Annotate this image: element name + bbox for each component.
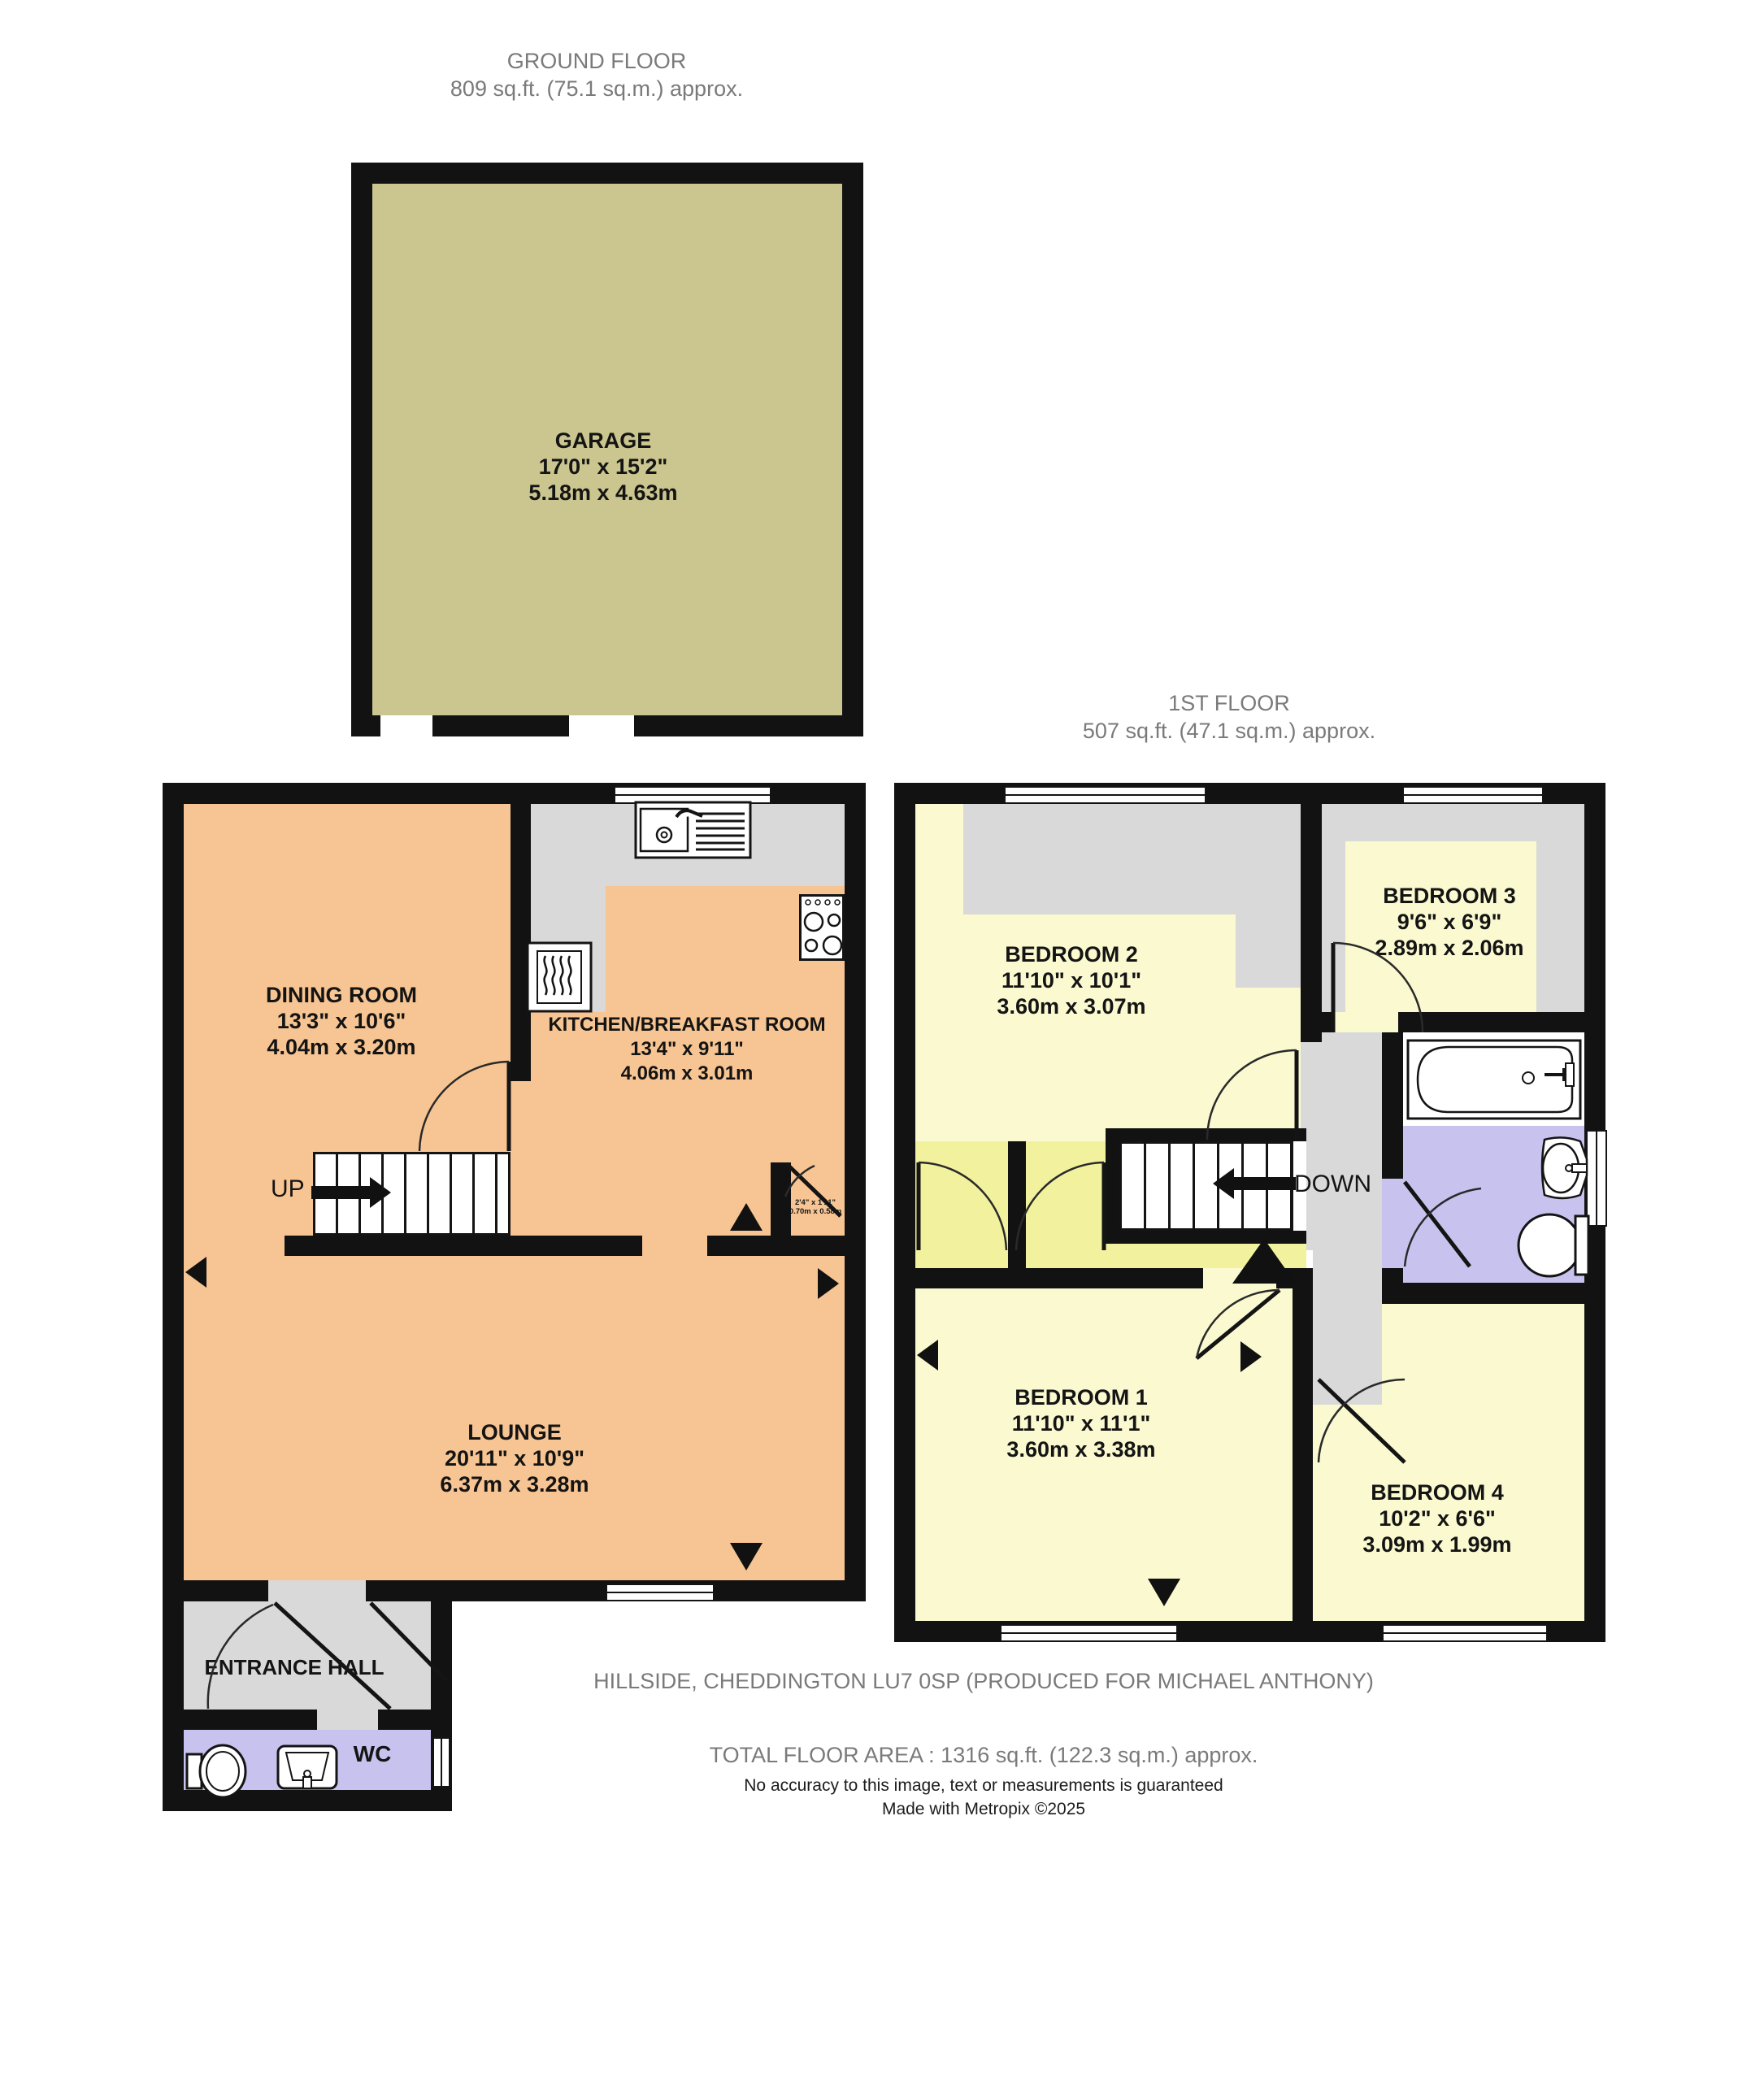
direction-arrow-up	[730, 1203, 763, 1231]
dining-imperial: 13'3" x 10'6"	[266, 1008, 417, 1034]
wall-segment	[1382, 1032, 1403, 1179]
window	[432, 1737, 450, 1788]
direction-arrow-left	[185, 1257, 206, 1288]
garage-door-gap	[569, 715, 634, 736]
wc-basin-icon	[275, 1744, 340, 1792]
bathtub-icon	[1406, 1039, 1582, 1120]
garage-label: GARAGE 17'0" x 15'2" 5.18m x 4.63m	[528, 428, 677, 506]
direction-arrow-down	[730, 1543, 763, 1571]
door-arc	[1317, 1378, 1408, 1466]
direction-arrow-right	[818, 1268, 839, 1299]
wall-segment	[163, 783, 184, 1601]
bedroom2-wardrobe	[963, 804, 1301, 915]
door-arc	[1401, 1177, 1486, 1271]
disclaimer-text: No accuracy to this image, text or measu…	[496, 1776, 1471, 1796]
total-floor-area: TOTAL FLOOR AREA : 1316 sq.ft. (122.3 sq…	[496, 1743, 1471, 1768]
stairs-up-label: UP	[271, 1175, 305, 1203]
wall-segment	[1382, 1283, 1605, 1304]
direction-arrow-down	[1148, 1579, 1180, 1606]
door-opening	[268, 1580, 366, 1601]
kitchen-imperial: 13'4" x 9'11"	[548, 1037, 825, 1062]
bedroom1-name: BEDROOM 1	[1006, 1384, 1155, 1410]
wall-segment	[285, 1236, 642, 1256]
door-opening	[642, 1236, 707, 1256]
lounge-name: LOUNGE	[440, 1419, 589, 1445]
bedroom2-imperial: 11'10" x 10'1"	[997, 967, 1145, 993]
first-floor-area: 507 sq.ft. (47.1 sq.m.) approx.	[985, 717, 1473, 745]
bedroom2-wardrobe	[1236, 915, 1301, 988]
window	[1402, 786, 1544, 804]
garage-imperial: 17'0" x 15'2"	[528, 454, 677, 480]
bedroom4-label: BEDROOM 4 10'2" x 6'6" 3.09m x 1.99m	[1362, 1479, 1511, 1557]
garage-door-gap	[380, 715, 432, 736]
garage-name: GARAGE	[528, 428, 677, 454]
wc-label: WC	[354, 1741, 392, 1767]
property-address: HILLSIDE, CHEDDINGTON LU7 0SP (PRODUCED …	[496, 1669, 1471, 1694]
bedroom4-metric: 3.09m x 1.99m	[1362, 1531, 1511, 1557]
ground-floor-title: GROUND FLOOR	[353, 47, 841, 75]
stairs-down-arrow	[1232, 1177, 1296, 1190]
wall-segment	[845, 783, 866, 1601]
room-lounge	[184, 1256, 845, 1580]
window	[1382, 1624, 1548, 1642]
lounge-metric: 6.37m x 3.28m	[440, 1471, 589, 1497]
first-floor-title: 1ST FLOOR	[985, 689, 1473, 717]
bedroom1-label: BEDROOM 1 11'10" x 11'1" 3.60m x 3.38m	[1006, 1384, 1155, 1462]
door-opening	[1382, 1179, 1403, 1268]
ground-floor-header: GROUND FLOOR 809 sq.ft. (75.1 sq.m.) app…	[353, 47, 841, 102]
bedroom4-name: BEDROOM 4	[1362, 1479, 1511, 1505]
stairs-down-arrow-head	[1213, 1168, 1234, 1199]
wall-segment	[1301, 804, 1322, 1042]
window	[606, 1584, 715, 1601]
window	[1004, 786, 1206, 804]
kitchen-label: KITCHEN/BREAKFAST ROOM 13'4" x 9'11" 4.0…	[548, 1013, 825, 1086]
boiler-icon	[526, 941, 593, 1013]
wall-segment	[163, 1601, 184, 1811]
door-arc	[915, 1159, 1008, 1253]
door-arc	[203, 1600, 457, 1715]
bedroom3-imperial: 9'6" x 6'9"	[1375, 909, 1523, 935]
lounge-label: LOUNGE 20'11" x 10'9" 6.37m x 3.28m	[440, 1419, 589, 1497]
bedroom2-label: BEDROOM 2 11'10" x 10'1" 3.60m x 3.07m	[997, 941, 1145, 1019]
ground-floor-area: 809 sq.ft. (75.1 sq.m.) approx.	[353, 75, 841, 102]
lounge-imperial: 20'11" x 10'9"	[440, 1445, 589, 1471]
credit-text: Made with Metropix ©2025	[496, 1800, 1471, 1819]
wc-toilet-icon	[185, 1741, 249, 1801]
floorplan-page: { "headers": { "ground_floor": {"title":…	[0, 0, 1764, 2081]
bedroom2-name: BEDROOM 2	[997, 941, 1145, 967]
stove-icon	[799, 894, 845, 961]
wall-segment	[894, 783, 915, 1642]
first-floor-header: 1ST FLOOR 507 sq.ft. (47.1 sq.m.) approx…	[985, 689, 1473, 745]
door-opening	[184, 1236, 285, 1256]
bedroom2-metric: 3.60m x 3.07m	[997, 993, 1145, 1019]
kitchen-name: KITCHEN/BREAKFAST ROOM	[548, 1013, 825, 1037]
room-bedroom4	[1382, 1304, 1584, 1405]
door-opening	[1301, 1042, 1322, 1128]
direction-arrow-right	[1240, 1341, 1262, 1372]
kitchen-sink-icon	[634, 801, 752, 859]
wall-segment	[1293, 1288, 1313, 1621]
window	[1000, 1624, 1178, 1642]
door-arc	[1015, 1159, 1107, 1253]
door-arc	[782, 1161, 847, 1221]
bathroom-toilet-icon	[1517, 1210, 1592, 1281]
stairs-up-arrow-head	[370, 1177, 391, 1208]
stairs-down-label: DOWN	[1294, 1171, 1371, 1198]
garage-metric: 5.18m x 4.63m	[528, 480, 677, 506]
bedroom1-metric: 3.60m x 3.38m	[1006, 1436, 1155, 1462]
wall-segment	[707, 1236, 845, 1256]
door-opening	[511, 1081, 531, 1236]
direction-arrow-up	[1232, 1239, 1296, 1284]
bedroom1-imperial: 11'10" x 11'1"	[1006, 1410, 1155, 1436]
kitchen-metric: 4.06m x 3.01m	[548, 1062, 825, 1086]
dining-metric: 4.04m x 3.20m	[266, 1034, 417, 1060]
door-arc	[418, 1058, 512, 1154]
bedroom4-imperial: 10'2" x 6'6"	[1362, 1505, 1511, 1531]
door-arc	[1195, 1288, 1283, 1363]
door-arc	[1330, 940, 1426, 1036]
bathroom-basin-icon	[1538, 1135, 1592, 1201]
stairs-up-arrow	[311, 1186, 371, 1199]
bedroom3-name: BEDROOM 3	[1375, 883, 1523, 909]
direction-arrow-left	[917, 1340, 938, 1371]
door-arc	[1204, 1047, 1300, 1143]
dining-label: DINING ROOM 13'3" x 10'6" 4.04m x 3.20m	[266, 982, 417, 1060]
dining-name: DINING ROOM	[266, 982, 417, 1008]
